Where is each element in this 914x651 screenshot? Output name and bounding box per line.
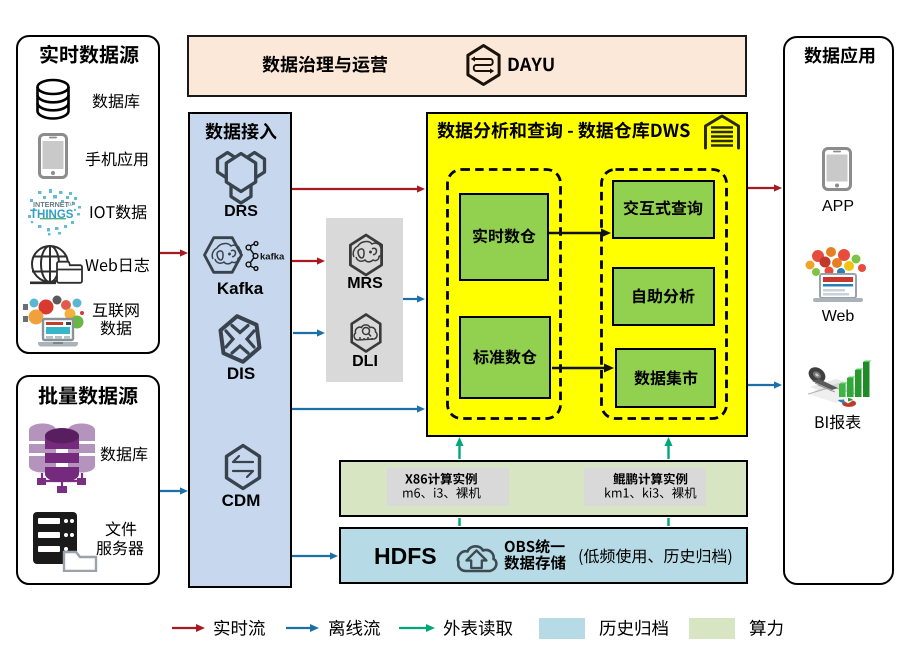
svg-text:kafka: kafka xyxy=(260,252,285,263)
svg-text:INTERNET: INTERNET xyxy=(33,200,70,209)
svg-text:THINGS: THINGS xyxy=(30,209,74,221)
